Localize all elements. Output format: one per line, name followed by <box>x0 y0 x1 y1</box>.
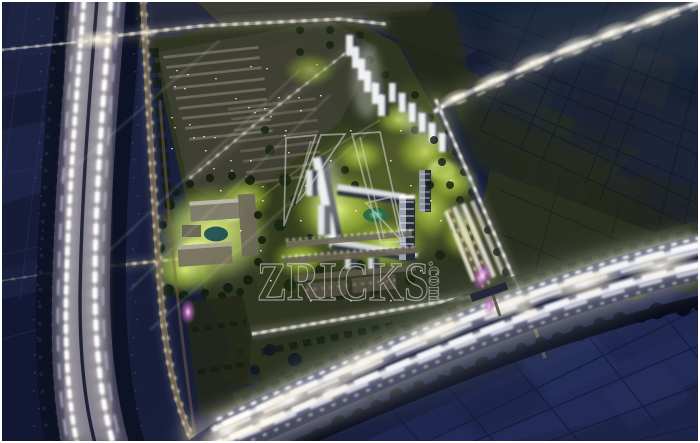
svg-text:.com: .com <box>424 261 448 304</box>
svg-text:ZRICKS: ZRICKS <box>257 251 429 312</box>
